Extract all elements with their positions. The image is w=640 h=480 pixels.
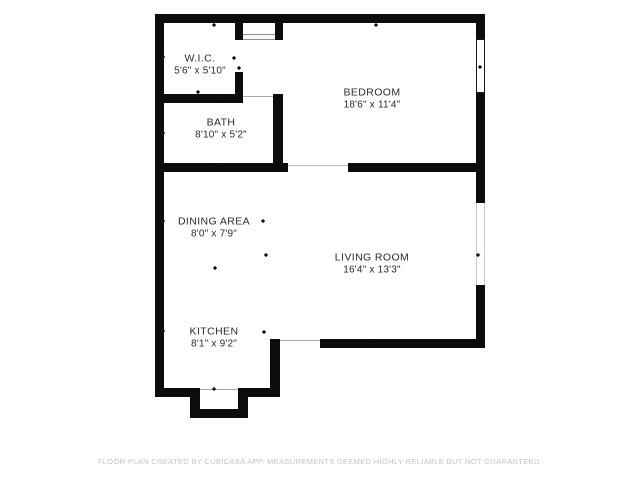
wall-exterior-left xyxy=(155,14,164,397)
room-dimensions: 8'1" x 9'2" xyxy=(190,338,239,351)
room-dimensions: 18'6" x 11'4" xyxy=(343,99,400,112)
disclaimer-text: FLOOR PLAN CREATED BY CUBICASA APP. MEAS… xyxy=(0,457,640,466)
wall-exterior-top xyxy=(155,14,485,23)
room-dimensions: 5'6" x 5'10" xyxy=(174,65,226,78)
room-label-bedroom: BEDROOM 18'6" x 11'4" xyxy=(343,87,400,112)
bath-door-line xyxy=(243,96,273,97)
wall-closet-left xyxy=(235,23,243,40)
room-label-living-room: LIVING ROOM 16'4" x 13'3" xyxy=(335,252,409,277)
tick-mark xyxy=(161,329,165,333)
room-dimensions: 8'0" x 7'9" xyxy=(178,228,250,241)
tick-mark xyxy=(212,387,216,391)
bedroom-door-line xyxy=(288,165,348,166)
room-name: W.I.C. xyxy=(174,53,226,66)
tick-mark xyxy=(161,219,165,223)
room-name: DINING AREA xyxy=(178,216,250,229)
wall-wic-bath-divider xyxy=(155,94,243,103)
room-name: BEDROOM xyxy=(343,87,400,100)
wall-bedroom-bottom-left xyxy=(155,163,288,172)
tick-mark xyxy=(237,66,241,70)
wall-living-bottom xyxy=(320,339,485,348)
tick-mark xyxy=(161,131,165,135)
room-dimensions: 8'10" x 5'2" xyxy=(195,129,247,142)
room-label-kitchen: KITCHEN 8'1" x 9'2" xyxy=(190,326,239,351)
tick-mark xyxy=(212,23,216,27)
wall-exterior-right-upper xyxy=(476,14,485,39)
living-room-opening xyxy=(476,203,485,285)
tick-mark xyxy=(264,253,268,257)
room-dimensions: 16'4" x 13'3" xyxy=(335,264,409,277)
room-label-bath: BATH 8'10" x 5'2" xyxy=(195,117,247,142)
room-name: LIVING ROOM xyxy=(335,252,409,265)
tick-mark xyxy=(213,266,217,270)
closet-door xyxy=(243,34,275,40)
wall-closet-right xyxy=(275,23,283,40)
wall-entry-nook-bottom xyxy=(190,409,248,418)
patio-opening-line xyxy=(280,340,320,341)
tick-mark xyxy=(232,56,236,60)
entry-door-line xyxy=(200,389,238,390)
floor-plan-canvas: W.I.C. 5'6" x 5'10" BATH 8'10" x 5'2" BE… xyxy=(0,0,640,480)
tick-mark xyxy=(261,219,265,223)
tick-mark xyxy=(161,55,165,59)
room-label-wic: W.I.C. 5'6" x 5'10" xyxy=(174,53,226,78)
room-name: BATH xyxy=(195,117,247,130)
tick-mark xyxy=(374,23,378,27)
room-label-dining-area: DINING AREA 8'0" x 7'9" xyxy=(178,216,250,241)
tick-mark xyxy=(262,330,266,334)
room-name: KITCHEN xyxy=(190,326,239,339)
wall-exterior-right-middle xyxy=(476,93,485,203)
wall-bedroom-bottom-right xyxy=(348,163,476,172)
